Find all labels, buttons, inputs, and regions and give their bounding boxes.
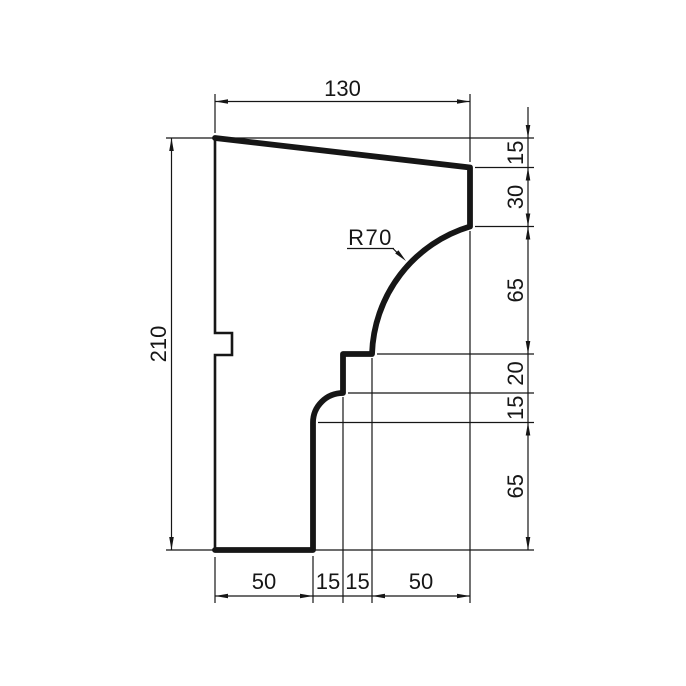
arrowhead-right-167 — [526, 168, 531, 181]
arrowhead-bottom-313 — [300, 594, 313, 599]
dimension-label-right-65b: 65 — [503, 474, 528, 498]
arrowhead-right-354 — [526, 341, 531, 354]
dimension-label-bottom-15a: 15 — [316, 569, 340, 594]
drawing-canvas: 130 210 15 30 65 20 15 65 50 15 15 50 R7… — [0, 0, 686, 686]
dimension-label-radius: R70 — [348, 225, 393, 250]
arrowhead-right-138 — [526, 125, 531, 138]
dimension-label-right-15b: 15 — [503, 396, 528, 420]
dimension-label-bottom-15b: 15 — [345, 569, 369, 594]
profile-back-edge-with-notch — [215, 138, 232, 550]
arrowhead-bottom-372 — [372, 594, 385, 599]
arrowhead-left-top — [169, 138, 174, 151]
dimension-label-top-width: 130 — [324, 76, 361, 101]
arrowhead-left-bottom — [169, 537, 174, 550]
technical-drawing: 130 210 15 30 65 20 15 65 50 15 15 50 R7… — [0, 0, 686, 686]
arrowhead-top-right — [457, 99, 470, 104]
arrowhead-bottom-215 — [215, 594, 228, 599]
extension-lines — [166, 94, 534, 603]
arrowhead-bottom-470 — [457, 594, 470, 599]
dimension-label-left-height: 210 — [146, 326, 171, 363]
arrowhead-right-422 — [526, 423, 531, 436]
radius-leader-arrowhead — [395, 250, 406, 261]
arrowhead-right-226-down — [526, 227, 531, 240]
arrowhead-right-550 — [526, 537, 531, 550]
dimension-label-right-30: 30 — [503, 185, 528, 209]
arrowhead-right-226-up — [526, 214, 531, 227]
dimension-label-right-65a: 65 — [503, 278, 528, 302]
dimension-lines — [172, 102, 529, 597]
dimension-label-bottom-50b: 50 — [409, 569, 433, 594]
dimension-label-bottom-50a: 50 — [252, 569, 276, 594]
arrowhead-top-left — [215, 99, 228, 104]
radius-leader — [347, 249, 406, 262]
dimension-label-right-15a: 15 — [503, 141, 528, 165]
arrowheads — [169, 99, 530, 598]
dimension-label-right-20: 20 — [503, 361, 528, 385]
